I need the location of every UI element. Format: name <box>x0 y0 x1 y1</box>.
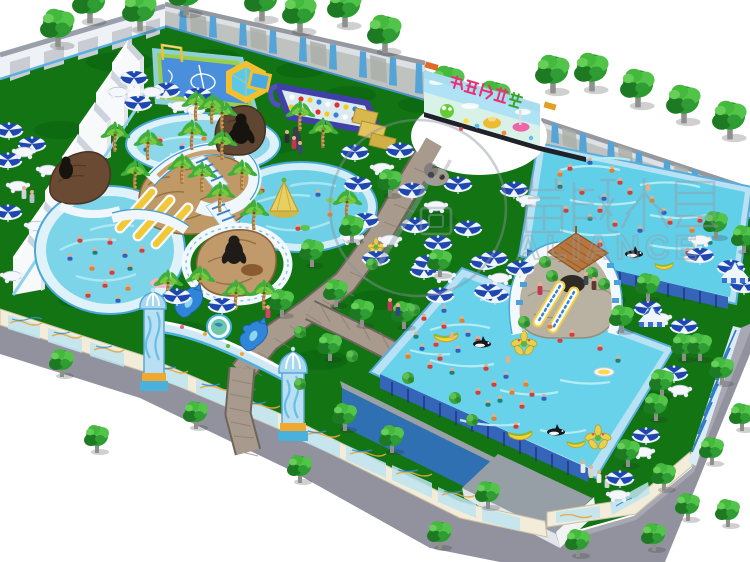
svg-text:ALIANCE: ALIANCE <box>516 229 702 267</box>
